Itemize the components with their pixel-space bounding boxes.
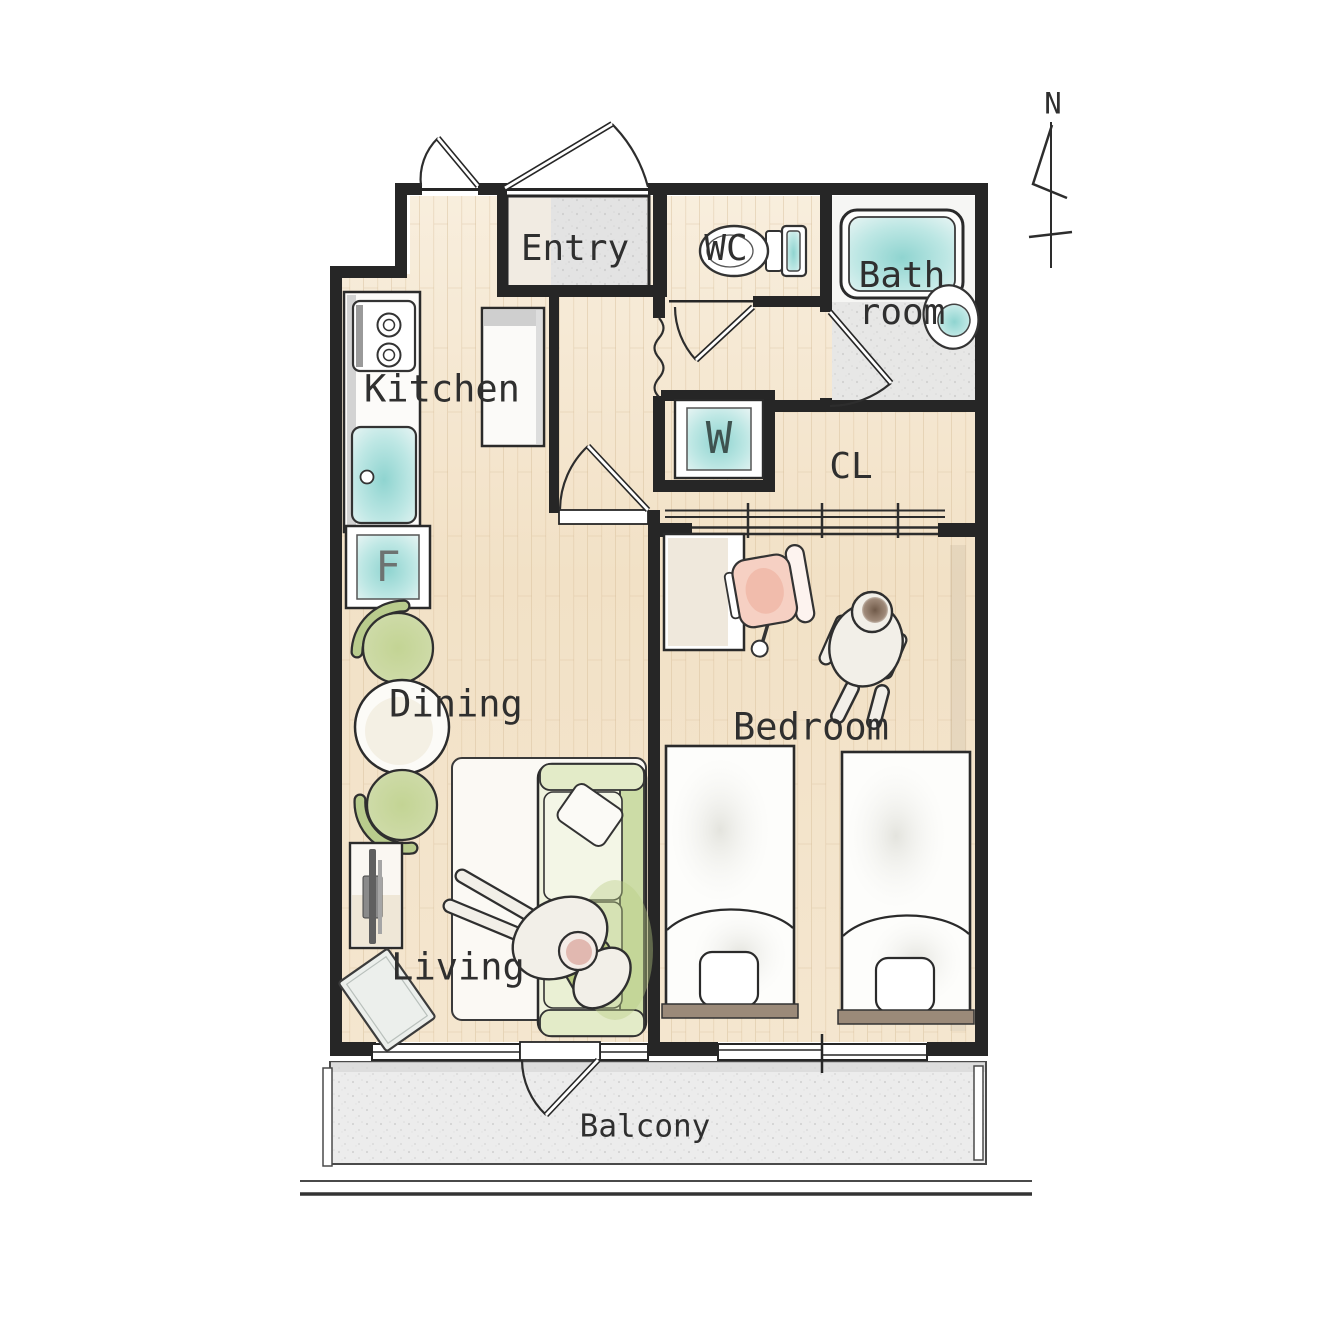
ground-line [300, 1181, 1032, 1194]
north-arrow-icon [1029, 122, 1072, 268]
label-fridge: F [375, 546, 400, 588]
kitchen-sink [352, 427, 416, 523]
label-bedroom: Bedroom [733, 709, 889, 746]
floor-plan: Entry WC Bathroom Kitchen CL Dining Bedr… [0, 0, 1320, 1320]
label-closet: CL [829, 449, 872, 485]
tv-stand [350, 843, 402, 948]
balcony-door-threshold [520, 1042, 600, 1060]
label-living: Living [391, 949, 525, 986]
hall-door-threshold [559, 510, 648, 524]
window-living [372, 1044, 648, 1060]
bed-1 [662, 746, 798, 1018]
label-balcony: Balcony [580, 1112, 711, 1143]
label-entry: Entry [521, 231, 629, 267]
label-bathroom: Bathroom [859, 257, 946, 331]
bed-2 [838, 752, 974, 1024]
label-dining: Dining [389, 686, 523, 723]
label-kitchen: Kitchen [364, 371, 520, 408]
label-north: N [1044, 90, 1061, 119]
door-arc-entry [505, 124, 648, 188]
door-arc-kitchen-entrance [421, 138, 478, 186]
label-wc: WC [704, 231, 747, 267]
label-washer: W [706, 417, 733, 461]
stove [353, 301, 415, 371]
